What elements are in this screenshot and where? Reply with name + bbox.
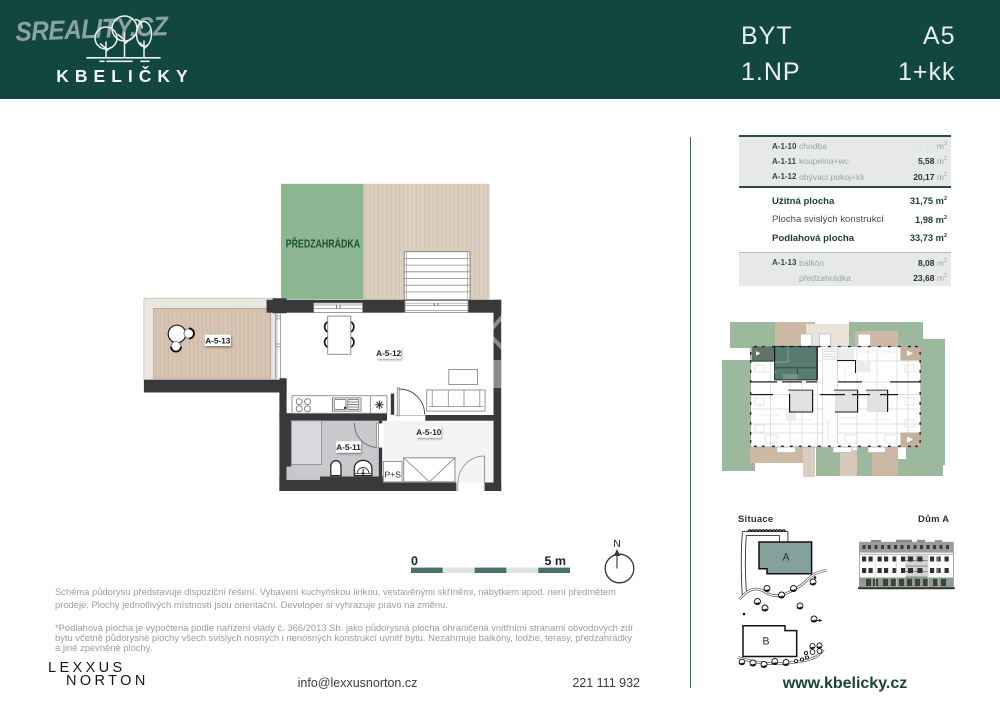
svg-text:A-5-11: A-5-11 (336, 443, 361, 452)
svg-text:P+S: P+S (384, 469, 401, 479)
svg-text:A: A (782, 552, 789, 564)
svg-text:A-5-13: A-5-13 (205, 337, 230, 346)
svg-text:A-5-12: A-5-12 (376, 349, 401, 358)
svg-text:0: 0 (411, 554, 418, 568)
svg-text:A-5-10: A-5-10 (416, 428, 441, 437)
svg-text:PŘEDZAHRÁDKA: PŘEDZAHRÁDKA (286, 237, 361, 251)
svg-text:5 m: 5 m (544, 554, 566, 568)
svg-text:N: N (613, 538, 621, 550)
